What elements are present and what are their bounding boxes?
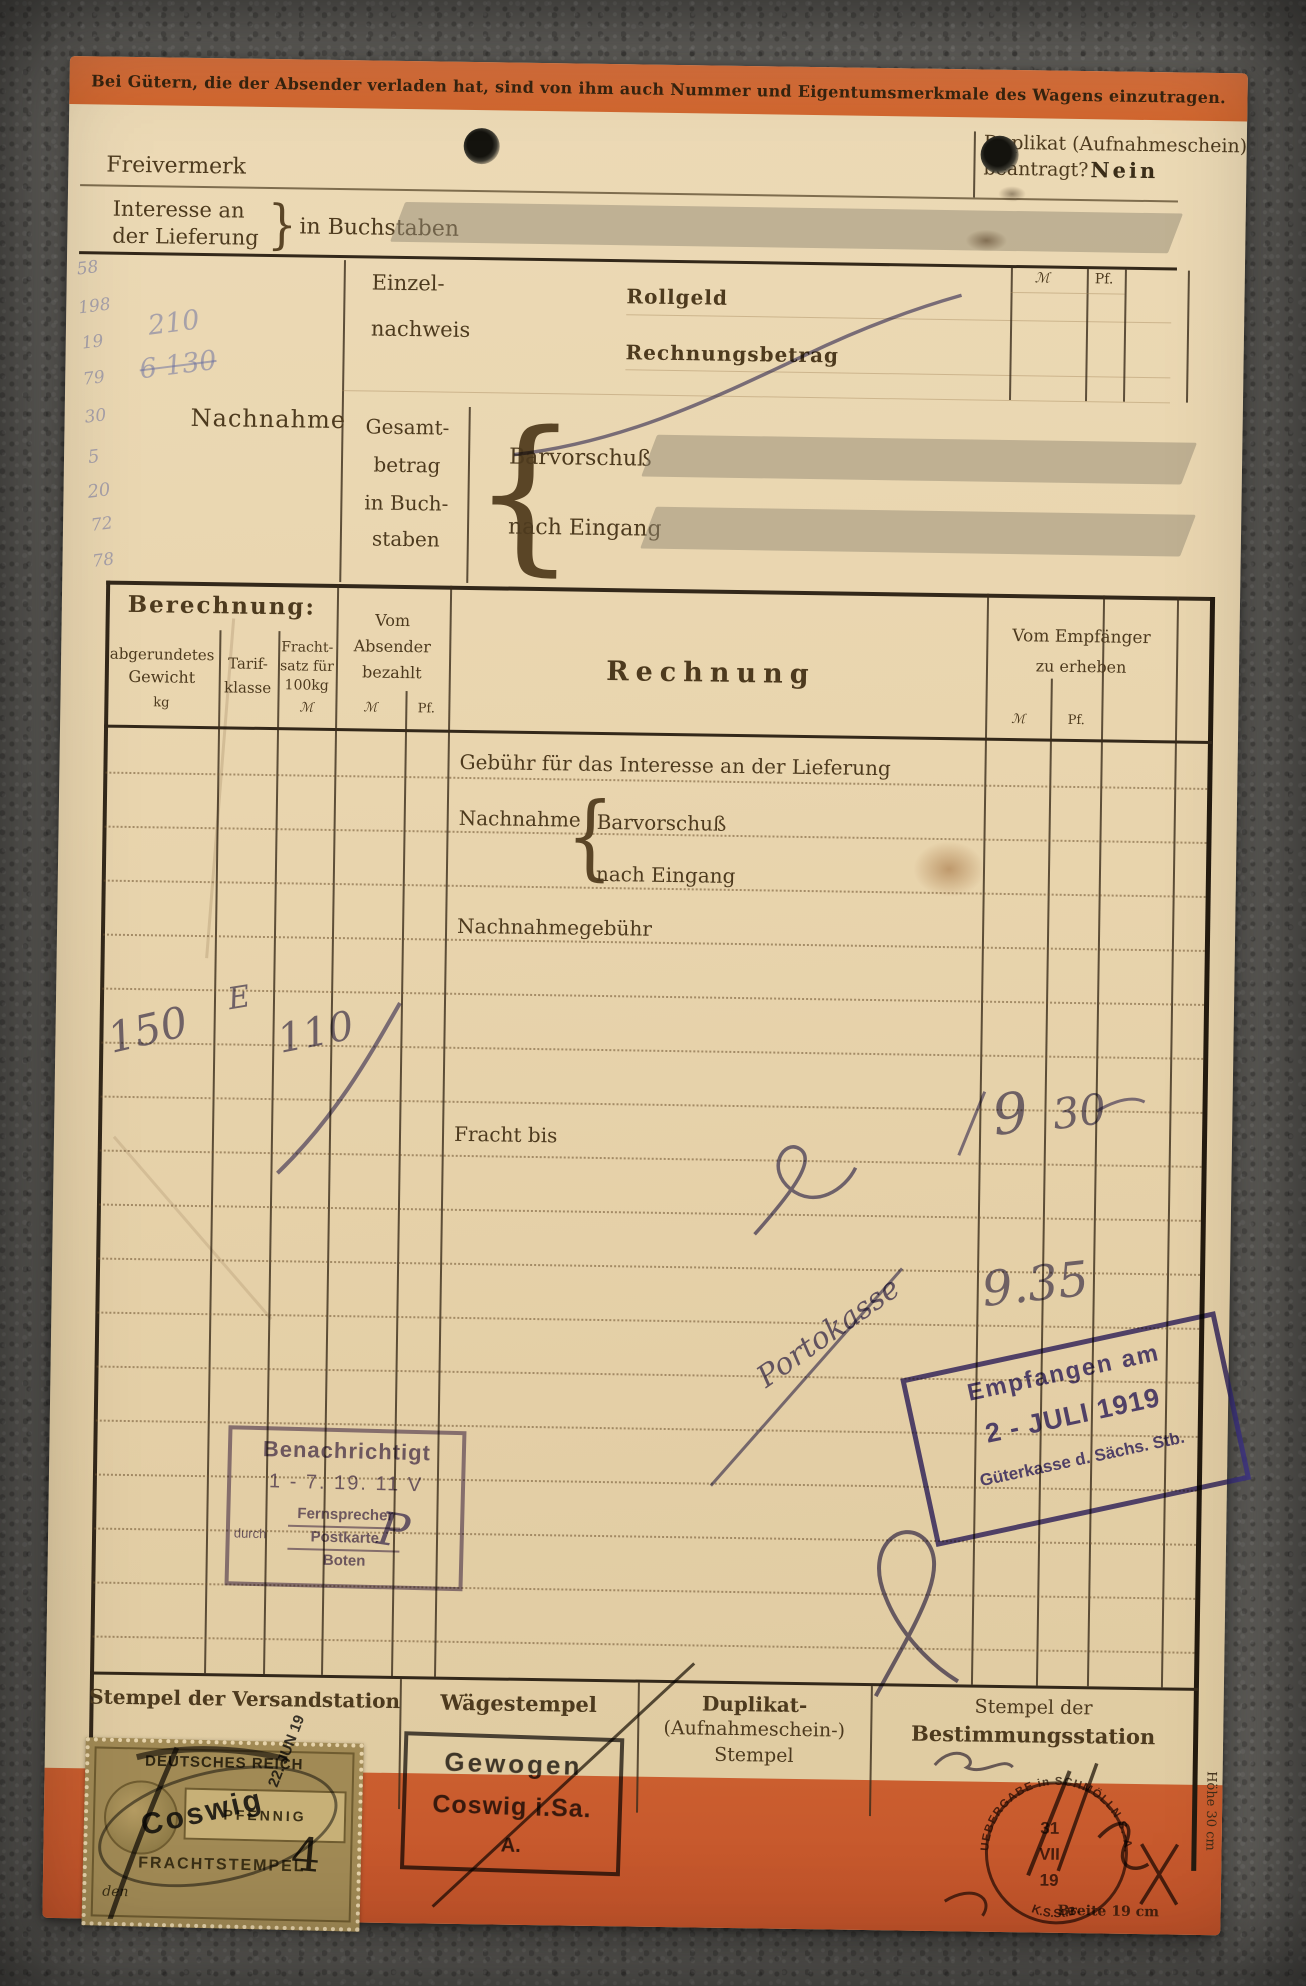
rechnung-heading: Rechnung [606, 656, 816, 690]
col-tarif-line2: klasse [224, 678, 271, 697]
row-barvorschuss-label: Barvorschuß [597, 810, 727, 836]
versandstation-label: Stempel der Versandstation [89, 1684, 400, 1713]
table-header-underline [104, 725, 1212, 744]
gesamt-line4: staben [372, 527, 440, 552]
benachrichtigt-date: 1 - 7. 19. 11 V [231, 1469, 462, 1498]
margin-number: 78 [91, 549, 115, 572]
einzel-money-line-2 [1085, 269, 1089, 401]
gewogen-line2: Coswig i.Sa. [406, 1789, 619, 1825]
col-tarif-line1: Tarif- [228, 654, 268, 673]
col-absender-line1: Vom [375, 611, 410, 631]
einzel-rule-2 [625, 369, 1170, 378]
duplikat-answer: Nein [1090, 157, 1158, 183]
col-empfaenger-line2: zu erheben [1036, 656, 1127, 676]
einzel-pfennig-label: Pf. [1095, 271, 1114, 287]
dotted-rule [101, 1042, 1203, 1060]
postmark-ring-text: UEBERGABE in SCHMÖLLN S.-A. [979, 1775, 1134, 1854]
svg-text:K.S.St.B.: K.S.St.B. [1030, 1901, 1082, 1920]
dotted-rule [101, 1096, 1203, 1114]
margin-number: 79 [82, 367, 106, 390]
hoehe-note: Höhe 30 cm [1203, 1771, 1219, 1851]
col-empfaenger-line1: Vom Empfänger [1012, 626, 1151, 648]
rust-stain [913, 841, 986, 898]
benachrichtigt-opt1: Fernsprecher [230, 1503, 460, 1526]
col-fracht-line1: Fracht- [281, 639, 333, 656]
dotted-rule [93, 1636, 1195, 1654]
einzel-rule-1 [626, 314, 1171, 323]
frachtstempel-den: den [102, 1884, 129, 1901]
instruction-banner-text: Bei Gütern, die der Absender verladen ha… [91, 71, 1226, 107]
handwritten-frachtsatz: 110 [274, 1003, 358, 1063]
interesse-line1: Interesse an [113, 197, 245, 223]
nachnahme-label: Nachnahme [190, 404, 346, 434]
rollgeld-label: Rollgeld [626, 284, 728, 310]
gewogen-line1: Gewogen [407, 1745, 620, 1783]
margin-number: 58 [76, 257, 100, 280]
freivermerk-label: Freivermerk [106, 153, 246, 180]
interesse-blank-field [390, 202, 1183, 253]
handwritten-frachtstempel-mark: 4 [289, 1827, 323, 1883]
pen-flourish [876, 1532, 960, 1698]
benachrichtigt-opt2: Postkarte [230, 1526, 460, 1549]
barvorschuss-label: Barvorschuß [509, 445, 652, 472]
postmark-year: 19 [1039, 1871, 1058, 1890]
einzel-rule-3 [342, 390, 1170, 403]
svg-text:UEBERGABE in SCHMÖLLN S.-A.: UEBERGABE in SCHMÖLLN S.-A. [979, 1775, 1134, 1854]
handwritten-gewicht: 150 [103, 997, 192, 1063]
handwritten-fracht-pfennig: 30 [1050, 1084, 1109, 1139]
paper-crease [111, 1137, 274, 1319]
postmark-bottom-text: K.S.St.B. [1030, 1901, 1082, 1920]
nach-eingang-blank-field [640, 507, 1196, 557]
benachrichtigt-title: Benachrichtigt [232, 1435, 463, 1467]
margin-number: 72 [90, 513, 114, 536]
einzel-mark-label: ℳ [1035, 270, 1050, 286]
margin-number: 6 130 [138, 345, 219, 385]
freivermerk-rule [80, 184, 1178, 202]
col-fracht-line3: 100kg [284, 677, 328, 694]
punch-hole [463, 128, 500, 165]
row-nach-eingang-label: nach Eingang [596, 862, 736, 888]
col-absender-line2: Absender [354, 636, 431, 656]
col-gewicht-line3: kg [153, 695, 169, 710]
duplikat-stempel-line3: Stempel [714, 1744, 794, 1767]
row-nachnahmegebuehr-label: Nachnahmegebühr [457, 914, 652, 941]
col-line-empfaenger-extra2 [1161, 596, 1179, 1687]
dotted-rule [99, 1204, 1201, 1222]
row-fracht-bis-label: Fracht bis [454, 1122, 558, 1148]
col-fracht-currency: ℳ [299, 700, 313, 715]
einzel-money-underline [1011, 292, 1125, 295]
interesse-line2: der Lieferung [112, 224, 259, 250]
dotted-rule [103, 934, 1205, 952]
handwritten-fracht-mark: 9 [988, 1080, 1031, 1149]
col-gewicht-line1: abgerundetes [110, 645, 215, 665]
postmark-day: 31 [1040, 1819, 1059, 1838]
margin-number: 20 [86, 479, 111, 503]
col-empfaenger-mark: ℳ [1011, 712, 1025, 727]
rechnungsbetrag-label: Rechnungsbetrag [625, 340, 839, 367]
einzel-money-line-3 [1123, 270, 1127, 402]
col-absender-pfennig: Pf. [418, 701, 435, 716]
dotted-rule [100, 1150, 1202, 1168]
postmark-month: VII [1039, 1845, 1060, 1864]
benachrichtigt-stamp: Benachrichtigt 1 - 7. 19. 11 V durch Fer… [225, 1425, 467, 1591]
col-absender-line3: bezahlt [362, 662, 422, 682]
gesamt-line2: betrag [373, 453, 440, 478]
col-line-empfaenger-extra1 [1087, 595, 1105, 1686]
margin-number: 19 [81, 331, 105, 354]
einzelnachweis-label2: nachweis [371, 316, 471, 341]
benachrichtigt-opt3: Boten [229, 1549, 459, 1572]
margin-number: 30 [83, 405, 107, 428]
photo-background: Bei Gütern, die der Absender verladen ha… [0, 0, 1306, 1986]
duplikat-stempel-line2: (Aufnahmeschein-) [663, 1717, 845, 1742]
row-nachnahme-label: Nachnahme [459, 806, 581, 832]
handwritten-total: 9.35 [979, 1251, 1091, 1318]
col-line-empfaenger-sub [1036, 679, 1053, 1686]
einzel-money-line-4 [1186, 271, 1190, 403]
row-gebuehr-label: Gebühr für das Interesse an der Lieferun… [459, 750, 891, 780]
top-orange-band: Bei Gütern, die der Absender verladen ha… [69, 56, 1248, 121]
gesamt-line1: Gesamt- [365, 414, 449, 439]
frachtbrief-document: Bei Gütern, die der Absender verladen ha… [42, 56, 1247, 1935]
einzelnachweis-label1: Einzel- [371, 271, 444, 296]
nachnahme-brace-icon: { [470, 408, 579, 578]
margin-number: 210 [146, 304, 201, 341]
barvorschuss-blank-field [641, 435, 1197, 485]
gewogen-line3: A. [404, 1831, 617, 1861]
dotted-rule [97, 1312, 1199, 1330]
interesse-brace-icon: } [267, 193, 297, 256]
gesamt-line3: in Buch- [364, 490, 448, 515]
uebergabe-postmark: UEBERGABE in SCHMÖLLN S.-A. K.S.St.B. 31… [970, 1767, 1143, 1940]
handwritten-tarifklasse: E [225, 979, 252, 1017]
bestimmungsstation-label2: Bestimmungsstation [911, 1721, 1156, 1750]
col-absender-mark: ℳ [363, 700, 377, 715]
duplikat-stempel-line1: Duplikat- [702, 1692, 808, 1718]
waegestempel-label: Wägestempel [440, 1690, 597, 1717]
einzel-money-line-1 [1009, 268, 1013, 400]
duplikat-divider [973, 131, 976, 197]
table-border-left [88, 581, 110, 1807]
col-gewicht-line2: Gewicht [128, 667, 195, 687]
dotted-rule [102, 988, 1204, 1006]
berechnung-heading: Berechnung: [128, 591, 317, 621]
col-fracht-line2: satz für [280, 658, 334, 675]
col-empfaenger-pfennig: Pf. [1068, 713, 1085, 728]
margin-number: 5 [87, 446, 101, 468]
nach-eingang-label: nach Eingang [508, 515, 662, 542]
margin-number: 198 [77, 294, 112, 318]
gewogen-stamp: Gewogen Coswig i.Sa. A. [400, 1731, 624, 1876]
duplikat-line1: Duplikat (Aufnahmeschein) [984, 132, 1248, 158]
bestimmungsstation-label1: Stempel der [974, 1696, 1092, 1720]
